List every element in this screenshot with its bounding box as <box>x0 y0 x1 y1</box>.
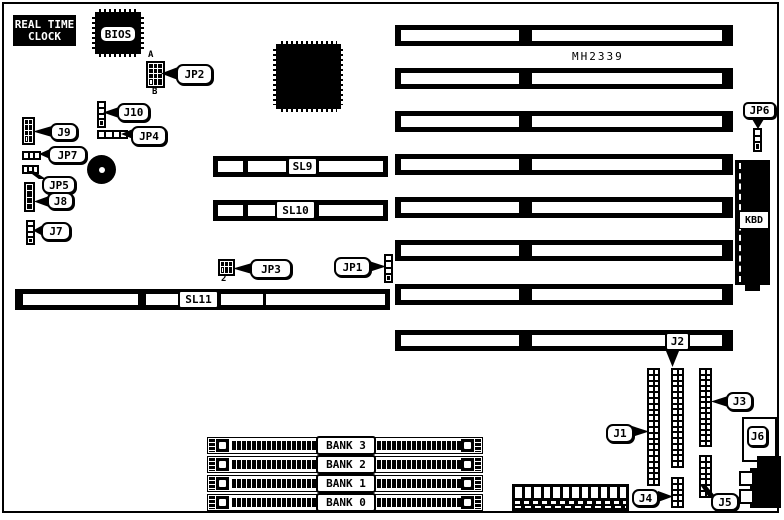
pin <box>515 487 522 498</box>
pin <box>229 267 232 273</box>
pin <box>386 262 391 266</box>
sl11-label-text: SL11 <box>185 293 212 306</box>
pin <box>679 422 683 426</box>
pin <box>154 74 158 78</box>
bank-latch <box>216 496 229 509</box>
j1-callout: J1 <box>606 424 634 443</box>
pin <box>572 487 579 498</box>
pin <box>601 487 608 498</box>
pin <box>679 491 683 495</box>
pin <box>701 475 705 479</box>
pin <box>679 382 683 386</box>
pin <box>679 370 683 374</box>
bank-end-pins <box>475 439 481 452</box>
jp7-connector <box>22 151 41 160</box>
pin <box>673 451 677 455</box>
pin <box>544 487 551 498</box>
pin <box>673 428 677 432</box>
slot-segment <box>401 159 519 170</box>
pin <box>154 64 158 68</box>
bank-end-pins <box>209 458 215 471</box>
pin <box>707 431 711 435</box>
pin <box>99 109 104 113</box>
jp2-connector <box>146 61 165 88</box>
slot-segment <box>532 202 722 213</box>
slot-segment <box>401 73 519 84</box>
bank-end-pins <box>475 496 481 509</box>
pin <box>701 457 705 461</box>
pin <box>99 115 104 119</box>
bank-latch <box>461 439 474 452</box>
corner-connector-tab <box>739 471 754 486</box>
pin <box>707 463 711 467</box>
pin <box>755 143 760 150</box>
pin <box>701 420 705 424</box>
pin <box>149 69 153 73</box>
pin <box>29 136 32 142</box>
pin <box>649 457 653 461</box>
pin <box>149 64 153 68</box>
pin <box>649 422 653 426</box>
pin <box>27 204 32 209</box>
pin <box>673 382 677 386</box>
pin <box>655 474 659 478</box>
pin <box>649 416 653 420</box>
pin <box>679 456 683 460</box>
j4-callout: J4 <box>632 489 659 507</box>
slot-segment <box>532 335 722 346</box>
pin <box>655 387 659 391</box>
pin <box>649 445 653 449</box>
pin <box>701 431 705 435</box>
bank-latch <box>216 439 229 452</box>
real-time-clock-block: REAL TIME CLOCK <box>13 15 76 46</box>
pin <box>673 456 677 460</box>
bank-latch <box>216 458 229 471</box>
j4-connector <box>671 477 684 508</box>
pin <box>701 409 705 413</box>
pin <box>679 485 683 489</box>
pin <box>701 436 705 440</box>
pin <box>28 233 33 236</box>
pin <box>158 79 162 85</box>
pin <box>154 69 158 73</box>
slot-segment <box>266 294 385 305</box>
pin <box>701 403 705 407</box>
pin <box>28 238 33 243</box>
j2-callout-text: J2 <box>671 335 684 348</box>
pin <box>386 275 391 281</box>
pin <box>655 405 659 409</box>
power-connector <box>512 484 629 511</box>
pin <box>655 416 659 420</box>
pin <box>673 405 677 409</box>
pin <box>229 262 232 266</box>
pin <box>655 469 659 473</box>
pin <box>149 79 153 85</box>
pin <box>673 370 677 374</box>
jp2-callout-text: JP2 <box>185 68 205 81</box>
pin <box>582 487 589 498</box>
pin <box>679 393 683 397</box>
jp7-callout-text: JP7 <box>58 149 78 162</box>
jp3-callout-text: JP3 <box>261 263 281 276</box>
sl10-label-text: SL10 <box>282 204 309 217</box>
bank-end-pins <box>209 496 215 509</box>
pin <box>701 469 705 473</box>
pin <box>553 487 560 498</box>
bank2-label: BANK 2 <box>316 455 376 474</box>
cpu-chip <box>276 44 341 109</box>
motherboard-diagram: REAL TIME CLOCK BIOS A B JP2 J10 JP4 J9 … <box>0 0 784 520</box>
j8-connector <box>24 182 35 212</box>
pin <box>99 132 104 137</box>
j5-callout-text: J5 <box>718 496 731 509</box>
isa-slot-2 <box>395 68 733 89</box>
pin <box>610 487 617 498</box>
pin <box>24 167 27 172</box>
bank-end-pins <box>209 439 215 452</box>
pin <box>525 487 532 498</box>
bank3-label: BANK 3 <box>316 436 376 455</box>
j3-callout-text: J3 <box>733 395 746 408</box>
bank-latch <box>461 496 474 509</box>
j9-callout: J9 <box>50 123 78 141</box>
pin <box>149 74 153 78</box>
pin <box>679 405 683 409</box>
jp2-pin-a-marker: A <box>148 50 153 60</box>
kbd-label: KBD <box>739 211 769 229</box>
pin <box>25 125 28 129</box>
pin <box>28 227 33 230</box>
bank-end-pins <box>209 477 215 490</box>
rtc-label-line2: CLOCK <box>28 31 61 43</box>
slot-segment <box>401 202 519 213</box>
bank-end-pins <box>475 477 481 490</box>
pin <box>679 502 683 506</box>
slot-segment <box>221 294 263 305</box>
bank2-label-text: BANK 2 <box>326 458 366 471</box>
pin <box>29 131 32 135</box>
jp7-callout: JP7 <box>48 146 87 164</box>
pin <box>707 403 711 407</box>
j10-callout-text: J10 <box>124 106 144 119</box>
j8-callout-text: J8 <box>54 195 67 208</box>
bank1-label-text: BANK 1 <box>326 477 366 490</box>
pin <box>27 185 32 190</box>
pin <box>707 425 711 429</box>
pin <box>591 487 598 498</box>
speaker-hole <box>99 167 105 173</box>
bank0-label-text: BANK 0 <box>326 496 366 509</box>
pin <box>27 191 32 196</box>
pin <box>701 425 705 429</box>
j3-callout: J3 <box>726 392 753 411</box>
pin <box>655 457 659 461</box>
corner-connector-tab <box>739 489 754 504</box>
jp4-callout: JP4 <box>131 126 167 146</box>
bank3-label-text: BANK 3 <box>326 439 366 452</box>
pin <box>386 256 391 260</box>
slot-segment <box>532 245 722 256</box>
j6-callout: J6 <box>747 426 768 447</box>
pin <box>29 125 32 129</box>
slot-segment <box>401 289 519 300</box>
kbd-label-text: KBD <box>745 215 763 226</box>
jp4-callout-text: JP4 <box>139 130 159 143</box>
bank1-slot: BANK 1 <box>207 475 483 492</box>
pin <box>649 428 653 432</box>
pin <box>655 451 659 455</box>
pin <box>701 392 705 396</box>
sl10-label: SL10 <box>275 200 316 220</box>
sl9-label-text: SL9 <box>293 160 313 173</box>
slot-segment <box>532 289 722 300</box>
jp1-callout: JP1 <box>334 257 371 277</box>
pin <box>707 392 711 396</box>
j9-callout-text: J9 <box>57 126 70 139</box>
pin <box>673 439 677 443</box>
pin <box>655 382 659 386</box>
pin <box>99 120 104 126</box>
pin <box>707 442 711 446</box>
slot-segment <box>319 161 383 172</box>
pin <box>655 440 659 444</box>
pin <box>673 376 677 380</box>
bank-latch <box>216 477 229 490</box>
sl9-label: SL9 <box>287 157 318 176</box>
j7-callout-text: J7 <box>49 225 62 238</box>
isa-slot-4 <box>395 154 733 175</box>
pin <box>34 167 37 172</box>
pin <box>679 428 683 432</box>
pin <box>701 463 705 467</box>
slot-segment <box>401 116 519 127</box>
pin <box>673 422 677 426</box>
pin <box>673 479 677 483</box>
slot-segment <box>401 335 519 346</box>
slot-segment <box>532 30 722 41</box>
power-connector-dashes <box>515 506 626 508</box>
pin <box>27 198 32 203</box>
jp1-callout-text: JP1 <box>343 261 363 274</box>
pin <box>158 69 162 73</box>
pin <box>655 376 659 380</box>
pin <box>655 480 659 484</box>
bank0-slot: BANK 0 <box>207 494 483 511</box>
pin <box>649 434 653 438</box>
j2-callout: J2 <box>665 332 690 351</box>
pin <box>534 487 541 498</box>
pin <box>655 422 659 426</box>
pin <box>701 414 705 418</box>
slot-segment <box>218 205 243 216</box>
pin <box>707 409 711 413</box>
pin <box>655 399 659 403</box>
pin <box>25 131 28 135</box>
pin <box>649 393 653 397</box>
pin <box>673 496 677 500</box>
pin <box>649 474 653 478</box>
pin <box>649 463 653 467</box>
sl11-label: SL11 <box>178 290 219 309</box>
pin <box>707 381 711 385</box>
pin <box>701 376 705 380</box>
pin <box>221 267 224 273</box>
slot-segment <box>218 161 243 172</box>
pin <box>655 434 659 438</box>
j1-callout-text: J1 <box>613 427 626 440</box>
pin <box>649 382 653 386</box>
j7-connector <box>26 220 35 245</box>
jp3-callout: JP3 <box>250 259 292 279</box>
pin <box>221 262 224 266</box>
j7-callout: J7 <box>41 222 71 241</box>
slot-segment <box>401 30 519 41</box>
pin <box>679 376 683 380</box>
pin <box>701 492 705 496</box>
isa-slot-7 <box>395 284 733 305</box>
bios-label-text: BIOS <box>105 28 132 41</box>
pin <box>655 428 659 432</box>
j1-connector <box>647 368 660 486</box>
pin <box>679 439 683 443</box>
bios-label: BIOS <box>99 25 137 43</box>
j3-connector <box>699 368 712 447</box>
j9-connector <box>22 117 35 145</box>
pin <box>679 445 683 449</box>
pin <box>673 410 677 414</box>
pin <box>673 399 677 403</box>
bank3-slot: BANK 3 <box>207 437 483 454</box>
pin <box>673 416 677 420</box>
jp1-connector <box>384 254 393 283</box>
corner-connector <box>750 468 781 508</box>
pin <box>35 153 39 158</box>
pin <box>755 130 760 135</box>
jp3-pin2-marker: 2 <box>221 274 226 284</box>
pin <box>649 405 653 409</box>
pin <box>158 64 162 68</box>
pin <box>701 442 705 446</box>
pin <box>563 487 570 498</box>
pin <box>655 370 659 374</box>
pin <box>25 136 28 142</box>
slot-segment <box>532 159 722 170</box>
bank-latch <box>461 477 474 490</box>
pin <box>28 222 33 225</box>
pin <box>679 399 683 403</box>
pin <box>701 480 705 484</box>
isa-slot-1 <box>395 25 733 46</box>
j10-connector <box>97 101 106 128</box>
pin <box>707 469 711 473</box>
pin <box>655 463 659 467</box>
rtc-label-line1: REAL TIME <box>15 19 75 31</box>
pin <box>673 502 677 506</box>
pin <box>673 433 677 437</box>
pin <box>649 387 653 391</box>
pin <box>649 376 653 380</box>
pin <box>679 387 683 391</box>
pin <box>649 370 653 374</box>
pin <box>620 487 627 498</box>
bank0-label: BANK 0 <box>316 493 376 512</box>
pin <box>679 479 683 483</box>
pin <box>649 451 653 455</box>
jp6-callout: JP6 <box>743 102 776 119</box>
pin <box>755 137 760 142</box>
pin <box>99 103 104 107</box>
pin <box>679 410 683 414</box>
pin <box>649 440 653 444</box>
slot-segment <box>23 294 138 305</box>
j5-callout: J5 <box>711 493 739 511</box>
jp5-callout-text: JP5 <box>49 179 69 192</box>
slot-segment <box>532 116 722 127</box>
pin <box>701 398 705 402</box>
j6-callout-text: J6 <box>751 430 764 443</box>
j2-connector <box>671 368 684 468</box>
pin <box>673 462 677 466</box>
pin <box>707 457 711 461</box>
pin <box>679 462 683 466</box>
pin <box>707 387 711 391</box>
pin <box>225 262 228 266</box>
j10-callout: J10 <box>117 103 150 122</box>
pin <box>114 132 119 137</box>
pin <box>673 393 677 397</box>
j4-callout-text: J4 <box>639 492 652 505</box>
bank-latch <box>461 458 474 471</box>
slot-segment <box>146 294 178 305</box>
pin <box>701 381 705 385</box>
pin <box>679 416 683 420</box>
chip-part-number: MH2339 <box>572 50 624 63</box>
pin <box>701 370 705 374</box>
power-connector-pins <box>514 486 627 499</box>
pin <box>679 433 683 437</box>
pin <box>29 120 32 124</box>
pin <box>707 420 711 424</box>
bank2-slot: BANK 2 <box>207 456 483 473</box>
power-connector-dashes <box>515 501 626 504</box>
pin <box>673 485 677 489</box>
pin <box>655 445 659 449</box>
isa-slot-3 <box>395 111 733 132</box>
pin <box>707 370 711 374</box>
pin <box>649 480 653 484</box>
pin <box>707 436 711 440</box>
jp2-pin-b-marker: B <box>152 87 157 97</box>
pin <box>707 398 711 402</box>
isa-slot-5 <box>395 197 733 218</box>
pin <box>679 496 683 500</box>
pin <box>701 387 705 391</box>
pin <box>655 393 659 397</box>
pin <box>154 79 158 85</box>
jp2-callout: JP2 <box>176 64 213 85</box>
kbd-connector-notch <box>745 285 760 291</box>
pin <box>158 74 162 78</box>
pin <box>225 267 228 273</box>
pin <box>707 376 711 380</box>
kbd-connector: KBD <box>735 160 770 285</box>
pin <box>655 411 659 415</box>
pin <box>673 445 677 449</box>
pin <box>707 414 711 418</box>
j8-callout: J8 <box>47 192 74 210</box>
